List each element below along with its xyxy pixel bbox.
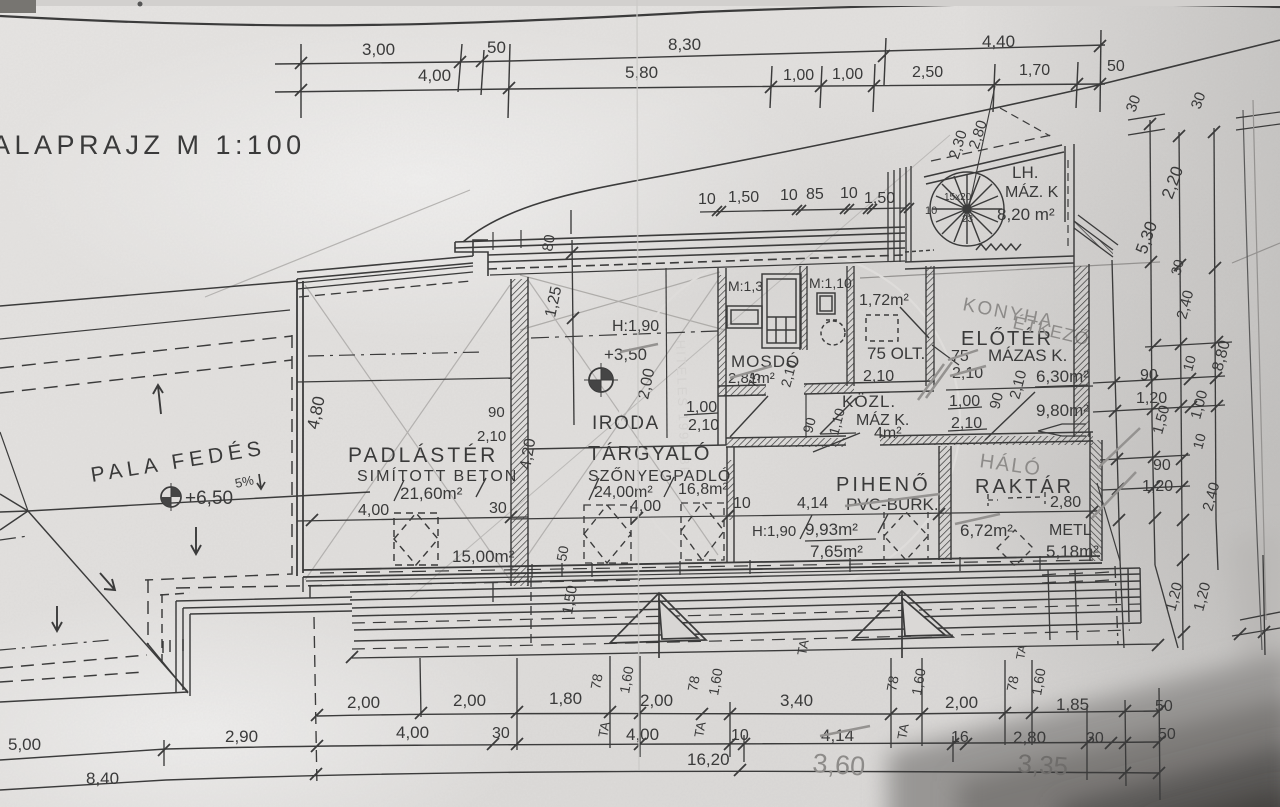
svg-text:78: 78 xyxy=(883,674,901,692)
svg-text:30: 30 xyxy=(1086,730,1104,747)
svg-text:23: 23 xyxy=(962,214,974,225)
svg-text:PADLÁSTÉR: PADLÁSTÉR xyxy=(348,444,498,467)
svg-text:50: 50 xyxy=(553,544,571,562)
svg-text:1,80: 1,80 xyxy=(549,689,582,708)
svg-text:2,10: 2,10 xyxy=(477,428,506,445)
svg-text:78: 78 xyxy=(684,674,702,692)
svg-text:16: 16 xyxy=(951,729,969,746)
svg-text:21,60m²: 21,60m² xyxy=(400,484,463,503)
svg-text:2,00: 2,00 xyxy=(945,693,978,712)
svg-text:3,00: 3,00 xyxy=(362,40,395,59)
svg-text:1,50: 1,50 xyxy=(864,190,895,207)
svg-text:+6,50: +6,50 xyxy=(185,488,233,509)
svg-text:16,8m²: 16,8m² xyxy=(678,481,728,498)
svg-text:2,10: 2,10 xyxy=(688,417,719,434)
svg-text:1,70: 1,70 xyxy=(1019,62,1050,79)
svg-text:2,80: 2,80 xyxy=(1050,494,1081,511)
svg-text:10: 10 xyxy=(698,191,716,208)
svg-text:15,00m²: 15,00m² xyxy=(452,547,515,566)
svg-text:15x20: 15x20 xyxy=(944,192,972,203)
svg-text:4,00: 4,00 xyxy=(418,66,451,85)
svg-text:10: 10 xyxy=(731,727,749,744)
svg-text:16,20: 16,20 xyxy=(687,750,730,769)
svg-text:80: 80 xyxy=(539,233,559,252)
svg-text:10: 10 xyxy=(733,495,751,512)
svg-text:10: 10 xyxy=(840,185,858,202)
svg-text:2,00: 2,00 xyxy=(640,691,673,710)
svg-text:IRODA: IRODA xyxy=(592,413,660,434)
svg-text:8,40: 8,40 xyxy=(86,769,119,788)
svg-text:1,00: 1,00 xyxy=(783,67,814,84)
svg-text:4,00: 4,00 xyxy=(358,502,389,519)
svg-text:2,00: 2,00 xyxy=(453,691,486,710)
svg-text:TA: TA xyxy=(1013,644,1029,661)
svg-text:6,72m²: 6,72m² xyxy=(960,521,1013,540)
svg-text:1,00: 1,00 xyxy=(832,66,863,83)
svg-text:1,20: 1,20 xyxy=(1142,478,1173,495)
svg-text:90: 90 xyxy=(1140,367,1158,384)
svg-text:50: 50 xyxy=(487,38,506,57)
svg-text:METL: METL xyxy=(1049,522,1092,539)
svg-text:78: 78 xyxy=(1003,674,1021,692)
svg-text:1,85: 1,85 xyxy=(1056,695,1089,714)
svg-text:75 OLT.: 75 OLT. xyxy=(867,344,925,363)
svg-text:4,00: 4,00 xyxy=(630,498,661,515)
svg-text:4,00: 4,00 xyxy=(626,725,659,744)
svg-text:2,50: 2,50 xyxy=(912,64,943,81)
svg-text:TA: TA xyxy=(894,722,912,740)
svg-text:M:1,3: M:1,3 xyxy=(728,278,763,294)
svg-text:1,50: 1,50 xyxy=(728,189,759,206)
svg-text:50: 50 xyxy=(1158,726,1176,743)
svg-text:78: 78 xyxy=(587,672,605,690)
svg-text:3,60: 3,60 xyxy=(812,748,867,782)
svg-text:8,30: 8,30 xyxy=(668,35,701,54)
svg-text:PIHENŐ: PIHENŐ xyxy=(836,473,931,496)
svg-text:85: 85 xyxy=(806,186,824,203)
svg-text:TA: TA xyxy=(691,720,709,738)
svg-text:TA: TA xyxy=(794,638,812,656)
svg-text:4,14: 4,14 xyxy=(797,495,828,512)
svg-text:H:1,90: H:1,90 xyxy=(612,318,659,335)
svg-text:5,00: 5,00 xyxy=(8,735,41,754)
svg-text:30: 30 xyxy=(489,500,507,517)
svg-text:9,93m²: 9,93m² xyxy=(805,520,858,539)
svg-text:MÁZAS K.: MÁZAS K. xyxy=(988,346,1067,365)
svg-text:2,90: 2,90 xyxy=(225,727,258,746)
svg-text:3,35: 3,35 xyxy=(1017,748,1070,781)
svg-text:10: 10 xyxy=(925,205,937,217)
svg-text:SIMÍTOTT BETON: SIMÍTOTT BETON xyxy=(357,466,518,485)
svg-text:2,00: 2,00 xyxy=(347,693,380,712)
svg-text:LH.: LH. xyxy=(1012,163,1038,182)
svg-text:3,40: 3,40 xyxy=(780,691,813,710)
svg-text:10: 10 xyxy=(780,187,798,204)
svg-text:2,80: 2,80 xyxy=(1013,728,1046,747)
svg-text:H:1,90: H:1,90 xyxy=(752,523,796,540)
svg-text:30: 30 xyxy=(492,725,510,742)
svg-text:7,65m²: 7,65m² xyxy=(810,542,863,561)
svg-text:4,40: 4,40 xyxy=(982,32,1015,51)
svg-text:50: 50 xyxy=(1107,58,1125,75)
svg-text:8,20 m²: 8,20 m² xyxy=(997,205,1055,224)
svg-text:1,20: 1,20 xyxy=(1136,390,1167,407)
svg-text:90: 90 xyxy=(1153,457,1171,474)
svg-text:M:1,10: M:1,10 xyxy=(809,275,852,291)
svg-text:90: 90 xyxy=(488,404,505,421)
svg-text:50: 50 xyxy=(1155,698,1173,715)
svg-text:MÁZ. K: MÁZ. K xyxy=(1005,182,1059,201)
svg-text:4,00: 4,00 xyxy=(396,723,429,742)
svg-text:1,72m²: 1,72m² xyxy=(859,292,909,309)
svg-text:5,80: 5,80 xyxy=(625,63,658,82)
svg-text:KÖZL.: KÖZL. xyxy=(842,392,896,411)
svg-text:ALAPRAJZ M 1:100: ALAPRAJZ M 1:100 xyxy=(0,130,306,160)
